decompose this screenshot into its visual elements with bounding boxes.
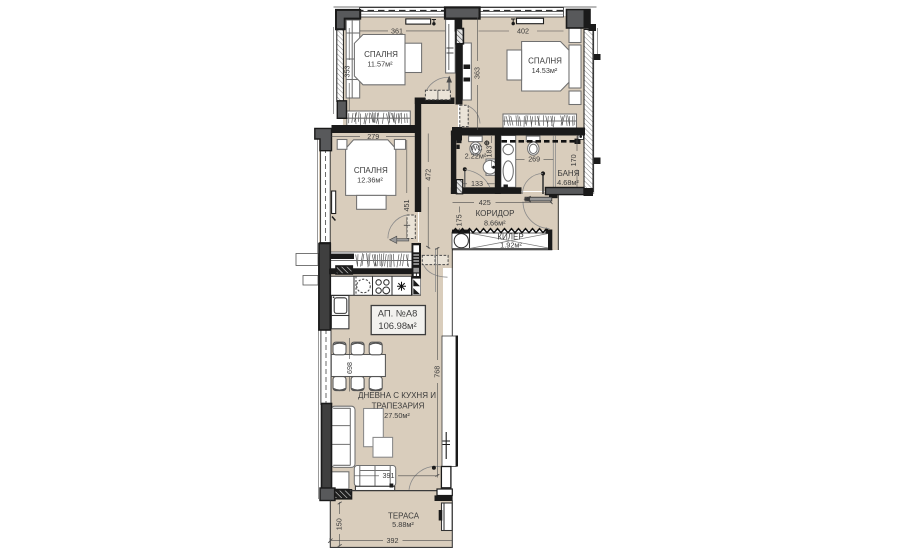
svg-text:ДНЕВНА С КУХНЯ И: ДНЕВНА С КУХНЯ И [358,391,436,400]
svg-text:175: 175 [454,214,463,226]
svg-text:5.88м²: 5.88м² [392,520,414,529]
svg-text:1.92м²: 1.92м² [500,241,522,250]
svg-text:СПАЛНЯ: СПАЛНЯ [528,57,562,66]
svg-text:КОРИДОР: КОРИДОР [476,209,515,218]
svg-text:12.36м²: 12.36м² [357,175,383,184]
svg-text:27.50м²: 27.50м² [384,411,410,420]
svg-text:АП. №А8: АП. №А8 [378,308,418,319]
svg-text:279: 279 [367,132,379,141]
svg-text:451: 451 [402,200,411,212]
svg-text:392: 392 [387,536,399,545]
svg-text:425: 425 [479,198,491,207]
svg-text:269: 269 [528,155,540,164]
svg-text:106.98м²: 106.98м² [378,320,416,331]
svg-text:183: 183 [484,146,493,158]
svg-text:133: 133 [471,179,483,188]
svg-text:4.68м²: 4.68м² [557,178,579,187]
svg-text:14.53м²: 14.53м² [532,66,558,75]
svg-text:361: 361 [391,26,403,35]
svg-text:11.57м²: 11.57м² [367,60,393,69]
svg-text:170: 170 [569,154,578,166]
svg-text:150: 150 [335,518,344,530]
svg-text:402: 402 [517,26,529,35]
svg-text:363: 363 [472,67,481,79]
svg-text:ТРАПЕЗАРИЯ: ТРАПЕЗАРИЯ [372,402,425,411]
svg-text:698: 698 [345,362,354,374]
svg-text:СПАЛНЯ: СПАЛНЯ [364,50,398,59]
svg-text:472: 472 [423,169,432,181]
svg-text:391: 391 [383,471,395,480]
svg-text:768: 768 [432,366,441,378]
svg-text:БАНЯ: БАНЯ [558,169,580,178]
svg-text:8.66м²: 8.66м² [484,218,506,227]
svg-text:СПАЛНЯ: СПАЛНЯ [354,166,388,175]
svg-text:353: 353 [342,66,351,78]
